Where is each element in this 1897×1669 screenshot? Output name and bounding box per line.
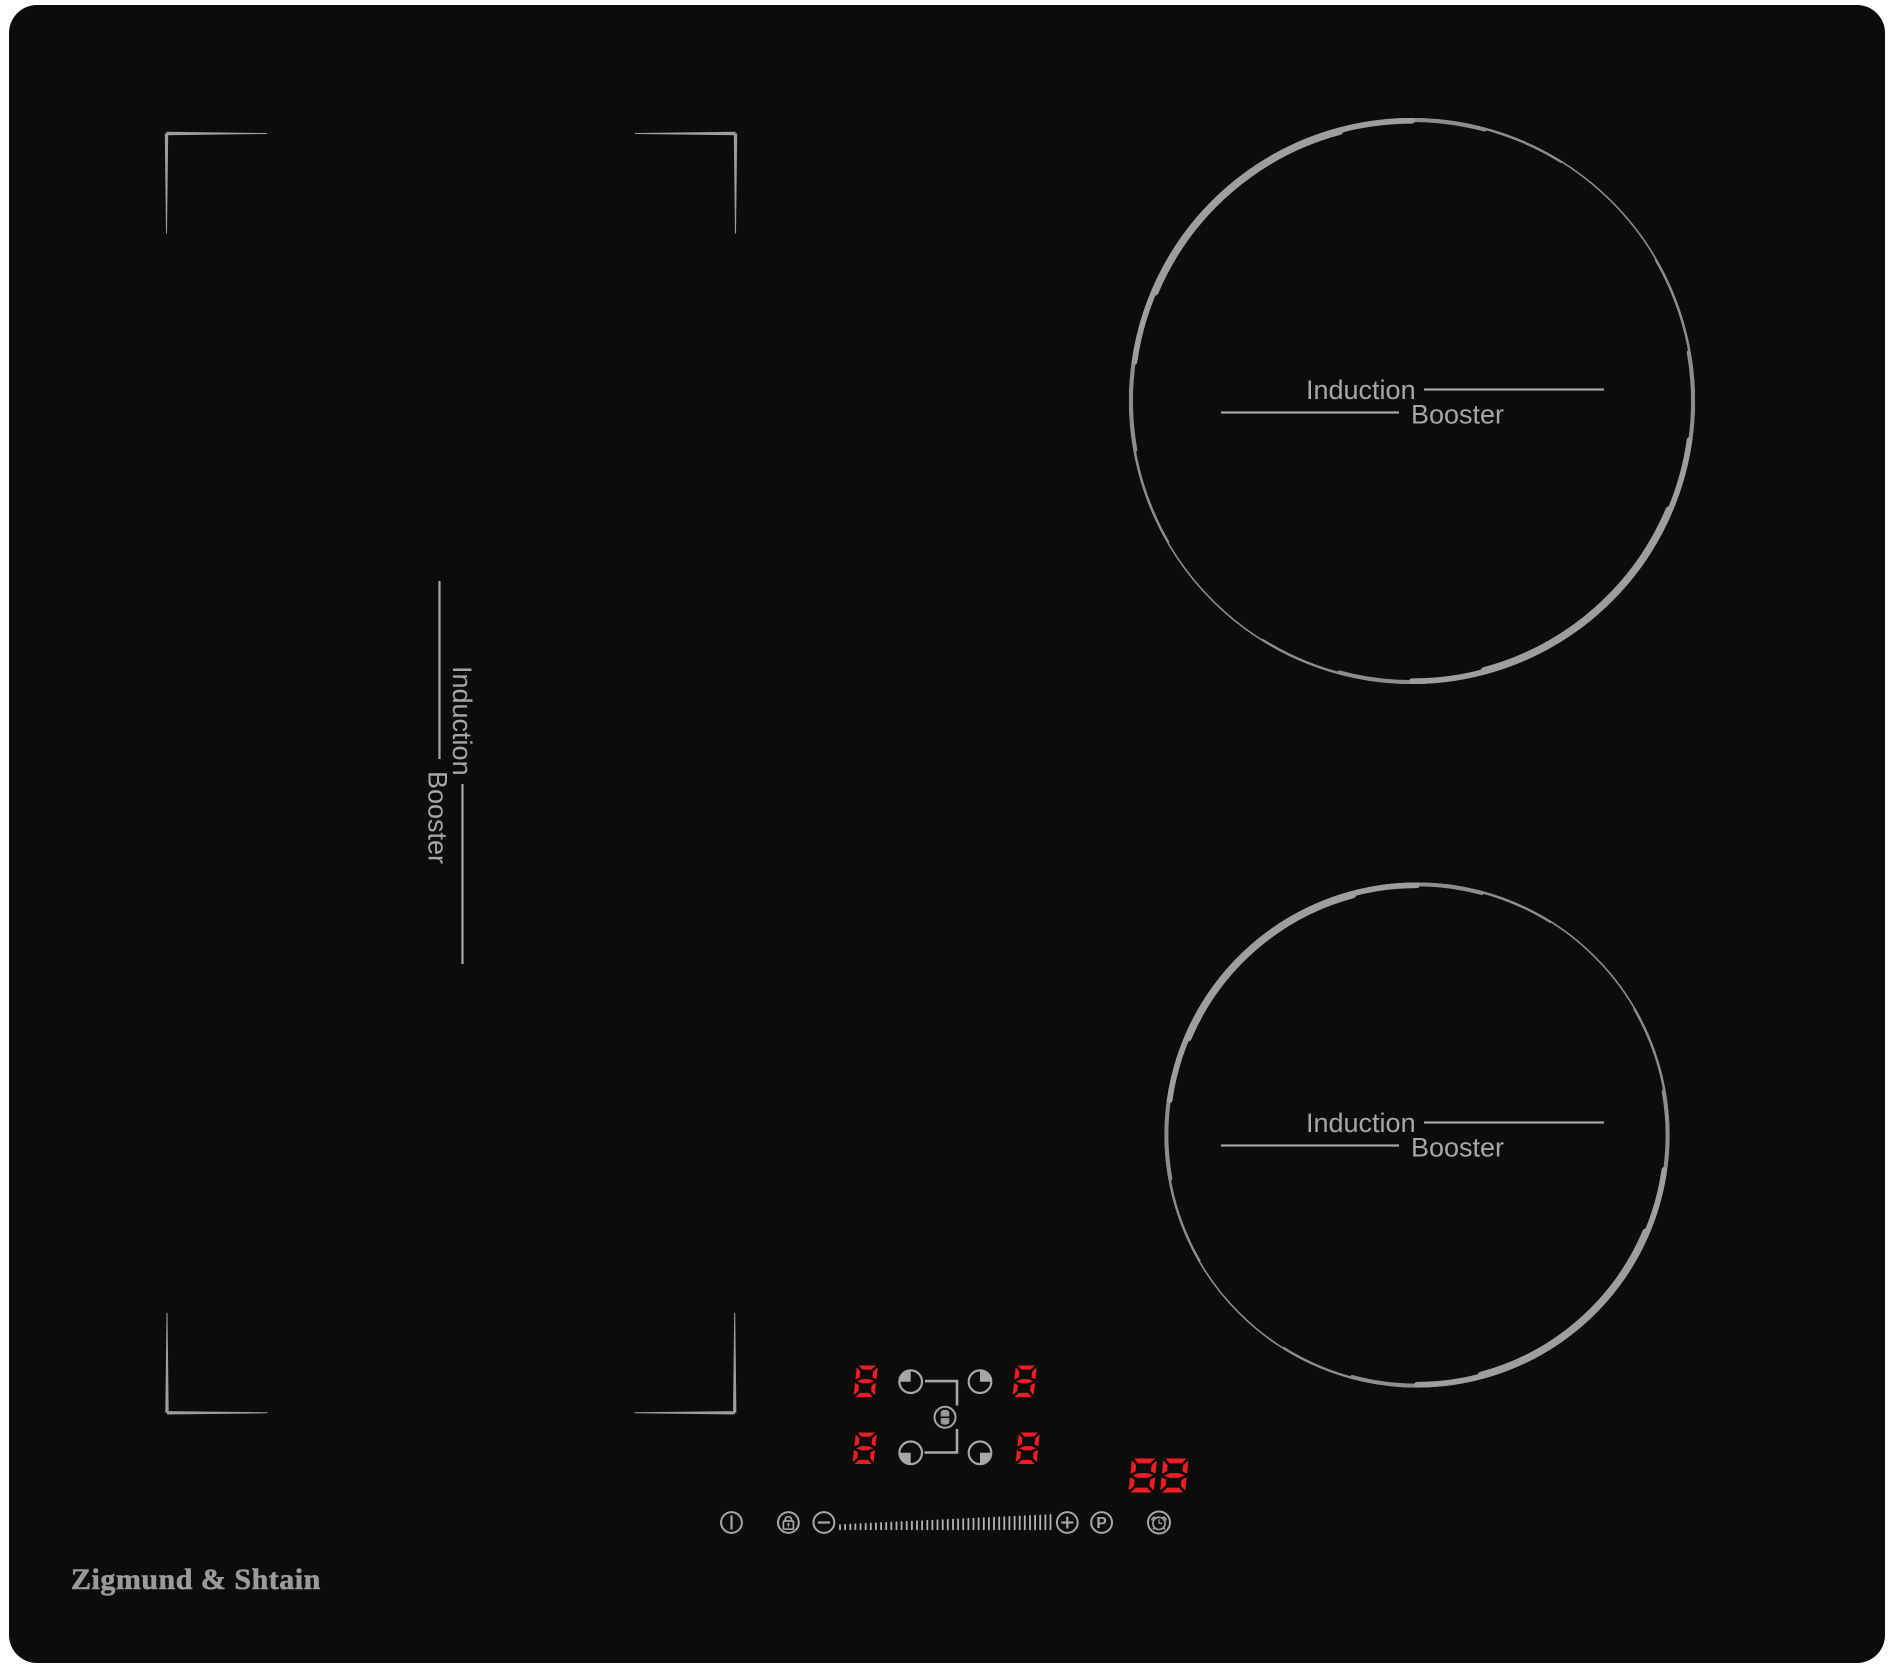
svg-text:P: P <box>1096 1515 1106 1532</box>
svg-text:Booster: Booster <box>1411 400 1504 430</box>
svg-text:Induction: Induction <box>447 666 477 776</box>
svg-text:Induction: Induction <box>1306 375 1416 405</box>
svg-text:Zigmund & Shtain: Zigmund & Shtain <box>71 1563 321 1596</box>
svg-text:Induction: Induction <box>1306 1108 1416 1138</box>
svg-text:Booster: Booster <box>423 771 453 864</box>
svg-text:Booster: Booster <box>1411 1133 1504 1163</box>
